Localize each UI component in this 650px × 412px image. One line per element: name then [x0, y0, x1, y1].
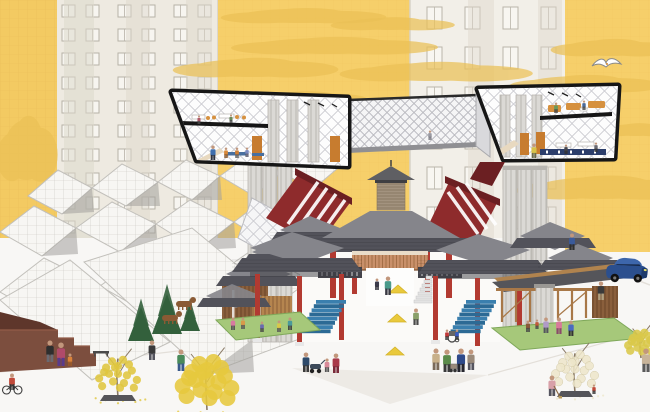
person-leg — [468, 363, 471, 370]
person-torso — [642, 354, 650, 365]
fallen-leaf — [144, 398, 146, 400]
person-leg — [327, 367, 329, 372]
person-torso — [598, 286, 604, 294]
person-leg — [262, 328, 263, 332]
person-leg — [436, 363, 439, 370]
person-head — [47, 341, 52, 346]
person-head — [444, 350, 449, 355]
person-torso — [531, 147, 536, 154]
person-leg — [388, 289, 390, 295]
tree-planter — [557, 391, 593, 397]
person-leg — [601, 294, 603, 300]
person-torso — [9, 378, 15, 385]
person-head — [58, 343, 64, 349]
person-leg — [447, 364, 450, 372]
person-leg — [237, 154, 238, 158]
person-leg — [277, 328, 279, 332]
person-torso — [568, 324, 573, 331]
fallen-leaf — [134, 401, 136, 403]
person-leg — [447, 336, 448, 340]
person-head — [595, 143, 597, 145]
person-leg — [152, 353, 155, 360]
person-torso — [413, 313, 419, 320]
dog-leg — [168, 320, 169, 324]
illustration-stage: Architectural collage illustration: elev… — [0, 0, 650, 412]
dog-leg — [190, 306, 191, 310]
tree-foliage — [627, 337, 635, 345]
person-leg — [536, 326, 537, 329]
door — [520, 133, 529, 155]
dog-leg — [182, 306, 183, 310]
person-leg — [572, 244, 574, 250]
broom-head — [559, 396, 563, 399]
person-leg — [260, 328, 261, 332]
tree-planter — [100, 395, 136, 401]
person-leg — [528, 328, 530, 332]
chair — [235, 115, 239, 119]
person-head — [150, 341, 155, 346]
person-torso — [333, 358, 340, 367]
person-head — [325, 359, 328, 362]
person-leg — [569, 244, 571, 250]
tree-foliage — [98, 382, 106, 390]
dog-leg — [172, 320, 173, 324]
bench-seat — [93, 351, 109, 354]
person-leg — [583, 107, 584, 110]
person-leg — [457, 336, 458, 340]
person-head — [536, 320, 538, 322]
person-head — [433, 349, 438, 354]
storefront-band — [540, 149, 606, 155]
person-leg — [595, 149, 596, 152]
chair — [242, 116, 246, 120]
person-leg — [70, 362, 72, 366]
person-leg — [231, 120, 232, 123]
person-head — [225, 148, 228, 151]
person-leg — [211, 155, 213, 160]
person-torso — [467, 355, 474, 364]
person-leg — [246, 154, 247, 157]
person-leg — [149, 353, 152, 360]
person-leg — [598, 294, 600, 300]
section-box-right — [476, 84, 622, 162]
person-leg — [181, 364, 184, 371]
table — [578, 142, 594, 146]
person-head — [230, 115, 232, 117]
person-leg — [566, 151, 567, 154]
person-torso — [432, 354, 439, 364]
fallen-leaf — [117, 402, 119, 404]
person-leg — [642, 364, 645, 372]
person-leg — [594, 391, 595, 394]
architectural-collage-illustration: Architectural collage illustration: elev… — [0, 0, 650, 412]
person-torso — [303, 357, 310, 366]
person-leg — [596, 149, 597, 152]
person-head — [583, 101, 585, 103]
person-leg — [224, 154, 225, 158]
person-leg — [546, 328, 548, 333]
person-leg — [537, 326, 538, 329]
bench — [252, 153, 264, 156]
person-head — [599, 282, 603, 286]
tree-foliage — [635, 334, 643, 342]
fallen-leaf — [574, 398, 576, 400]
person-head — [458, 349, 464, 355]
person-leg — [375, 286, 377, 290]
person-torso — [149, 345, 156, 354]
cloud-puff — [15, 116, 41, 158]
dog-leg — [164, 320, 165, 324]
person-leg — [471, 363, 474, 370]
cloud-puff — [223, 58, 295, 71]
person-leg — [552, 389, 555, 396]
person-leg — [230, 120, 231, 123]
dog-leg — [186, 306, 187, 310]
cloud-puff — [398, 62, 482, 75]
person-torso — [443, 355, 451, 365]
person-leg — [68, 362, 70, 366]
person-leg — [413, 319, 415, 325]
person-head — [456, 330, 459, 333]
tree-foliage — [195, 364, 211, 380]
slat-fence — [592, 286, 618, 318]
person-leg — [457, 364, 460, 372]
chair — [206, 116, 210, 120]
person-head — [446, 330, 449, 333]
person-leg — [233, 326, 235, 330]
cloud-puff — [571, 175, 649, 190]
person-torso — [569, 238, 575, 245]
person-leg — [288, 326, 290, 330]
dog-leg — [176, 320, 177, 324]
person-leg — [377, 286, 379, 290]
person-leg — [290, 326, 292, 330]
person-leg — [526, 328, 528, 332]
person-head — [544, 318, 548, 322]
person-leg — [433, 363, 436, 370]
person-leg — [430, 137, 431, 140]
dog-leg — [178, 306, 179, 310]
person-leg — [247, 154, 248, 157]
person-head — [304, 353, 309, 358]
section-box-left — [170, 90, 352, 170]
tree-foliage — [109, 377, 117, 385]
bench-leg — [94, 354, 96, 357]
person-head — [261, 322, 264, 325]
stroller-body — [310, 364, 321, 369]
person-head — [532, 144, 535, 147]
person-head — [376, 279, 379, 282]
person-leg — [303, 365, 306, 372]
tree-foliage — [556, 363, 564, 371]
cloud-puff — [368, 17, 422, 25]
person-leg — [199, 121, 200, 124]
person-leg — [47, 355, 50, 362]
person-head — [555, 103, 558, 106]
chair — [212, 116, 216, 120]
person-head — [527, 321, 530, 324]
sofa — [566, 103, 581, 110]
person-leg — [534, 153, 536, 158]
person-head — [289, 318, 292, 321]
person-leg — [241, 325, 243, 329]
person-leg — [231, 326, 233, 330]
person-leg — [198, 121, 199, 124]
person-leg — [336, 366, 339, 373]
fallen-leaf — [556, 398, 558, 400]
tree-foliage — [111, 363, 119, 371]
stroller-wheel — [310, 369, 314, 373]
person-leg — [57, 358, 60, 366]
person-head — [198, 116, 200, 118]
cart-wheel — [453, 369, 457, 373]
cloud-puff — [588, 39, 642, 50]
person-head — [565, 145, 567, 147]
tree-foliage — [202, 390, 218, 406]
person-head — [593, 385, 595, 387]
person-head — [334, 354, 339, 359]
person-leg — [646, 364, 649, 372]
person-torso — [57, 348, 65, 359]
tree-foliage — [573, 379, 581, 387]
tree-foliage — [128, 367, 136, 375]
wheelchair-seat — [449, 331, 456, 336]
tree-foliage — [116, 384, 124, 392]
fallen-leaf — [139, 399, 141, 401]
cloud-puff — [271, 8, 343, 18]
person-leg — [544, 328, 546, 333]
person-leg — [445, 336, 446, 340]
person-leg — [325, 367, 327, 372]
person-head — [569, 321, 573, 325]
person-leg — [554, 109, 555, 113]
person-torso — [46, 346, 53, 356]
person-head — [178, 350, 183, 355]
person-leg — [385, 289, 387, 295]
cloud-puff — [294, 37, 384, 48]
person-leg — [333, 366, 336, 373]
person-leg — [178, 364, 181, 371]
person-torso — [543, 321, 548, 328]
person-head — [557, 318, 561, 322]
tree-foliage — [217, 368, 233, 384]
fallen-leaf — [592, 397, 594, 399]
person-leg — [455, 336, 456, 340]
person-torso — [457, 354, 465, 365]
tree-foliage — [590, 371, 598, 379]
person-leg — [61, 358, 64, 366]
person-torso — [210, 149, 215, 156]
fallen-leaf — [597, 395, 599, 397]
orange-slatted-walkway — [352, 251, 428, 270]
person-head — [69, 354, 72, 357]
person-leg — [429, 137, 430, 140]
tree-foliage — [576, 350, 584, 358]
person-leg — [461, 364, 464, 372]
bench-leg — [107, 354, 109, 357]
person-leg — [565, 151, 566, 154]
tree-foliage — [100, 368, 108, 376]
person-leg — [549, 389, 552, 396]
person-leg — [213, 155, 215, 160]
section-box-left-interior — [170, 90, 352, 170]
person-leg — [556, 328, 558, 334]
tree-foliage — [119, 356, 127, 364]
dog-head — [190, 297, 196, 303]
fallen-leaf — [100, 401, 102, 403]
person-torso — [548, 381, 555, 390]
tree-foliage — [181, 370, 197, 386]
door — [330, 136, 340, 162]
person-head — [414, 309, 418, 313]
stroller-wheel — [317, 369, 321, 373]
person-leg — [593, 391, 594, 394]
person-leg — [571, 331, 573, 336]
tree-foliage — [130, 384, 138, 392]
person-leg — [235, 154, 236, 158]
person-head — [278, 321, 281, 324]
person-head — [246, 148, 248, 150]
fallen-leaf — [602, 394, 604, 396]
person-leg — [279, 328, 281, 332]
person-torso — [556, 322, 562, 329]
person-head — [10, 374, 14, 378]
person-leg — [556, 109, 557, 113]
person-leg — [559, 328, 561, 334]
door — [252, 136, 262, 160]
dog-head — [176, 311, 182, 317]
person-leg — [50, 355, 53, 362]
person-head — [469, 350, 474, 355]
person-leg — [243, 325, 245, 329]
person-torso — [177, 355, 184, 365]
person-torso — [385, 281, 391, 289]
tree-foliage — [133, 376, 141, 384]
table — [556, 143, 571, 147]
person-leg — [226, 154, 227, 158]
person-leg — [532, 153, 534, 158]
person-leg — [416, 319, 418, 325]
tree-foliage — [566, 373, 574, 381]
person-leg — [584, 107, 585, 110]
tree-foliage — [585, 362, 593, 370]
tree-foliage — [568, 358, 576, 366]
fallen-leaf — [95, 397, 97, 399]
person-leg — [569, 331, 571, 336]
person-head — [242, 318, 245, 321]
person-head — [429, 131, 431, 133]
person-head — [236, 148, 239, 151]
person-leg — [444, 364, 447, 372]
person-head — [643, 349, 649, 355]
person-head — [550, 376, 555, 381]
person-head — [232, 318, 235, 321]
sofa — [588, 101, 605, 108]
person-head — [570, 234, 574, 238]
tree-foliage — [554, 378, 562, 386]
person-leg — [306, 365, 309, 372]
person-head — [386, 277, 390, 281]
person-head — [211, 146, 214, 149]
